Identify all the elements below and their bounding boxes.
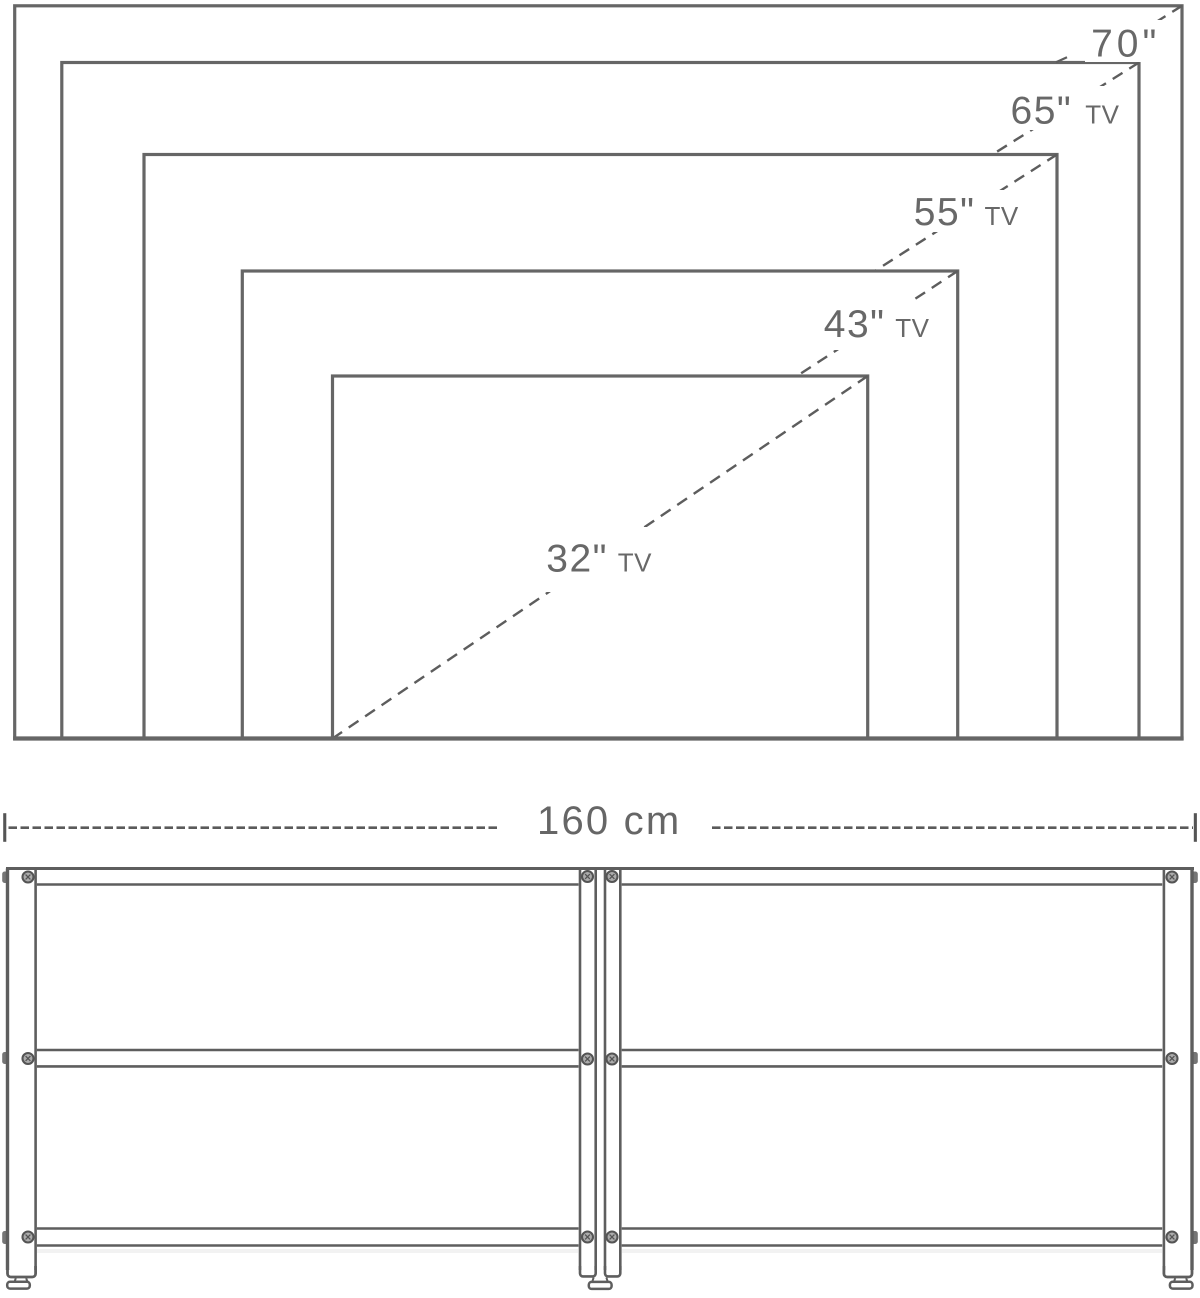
svg-text:TV: TV [895, 313, 929, 343]
svg-text:65": 65" [1011, 90, 1073, 133]
svg-text:70": 70" [1091, 22, 1160, 65]
svg-text:43": 43" [824, 303, 886, 346]
svg-text:TV: TV [618, 548, 652, 578]
svg-text:32": 32" [546, 538, 608, 581]
svg-text:160 cm: 160 cm [537, 799, 681, 843]
svg-text:55": 55" [914, 191, 976, 234]
svg-text:TV: TV [1085, 100, 1119, 130]
svg-text:TV: TV [985, 201, 1019, 231]
